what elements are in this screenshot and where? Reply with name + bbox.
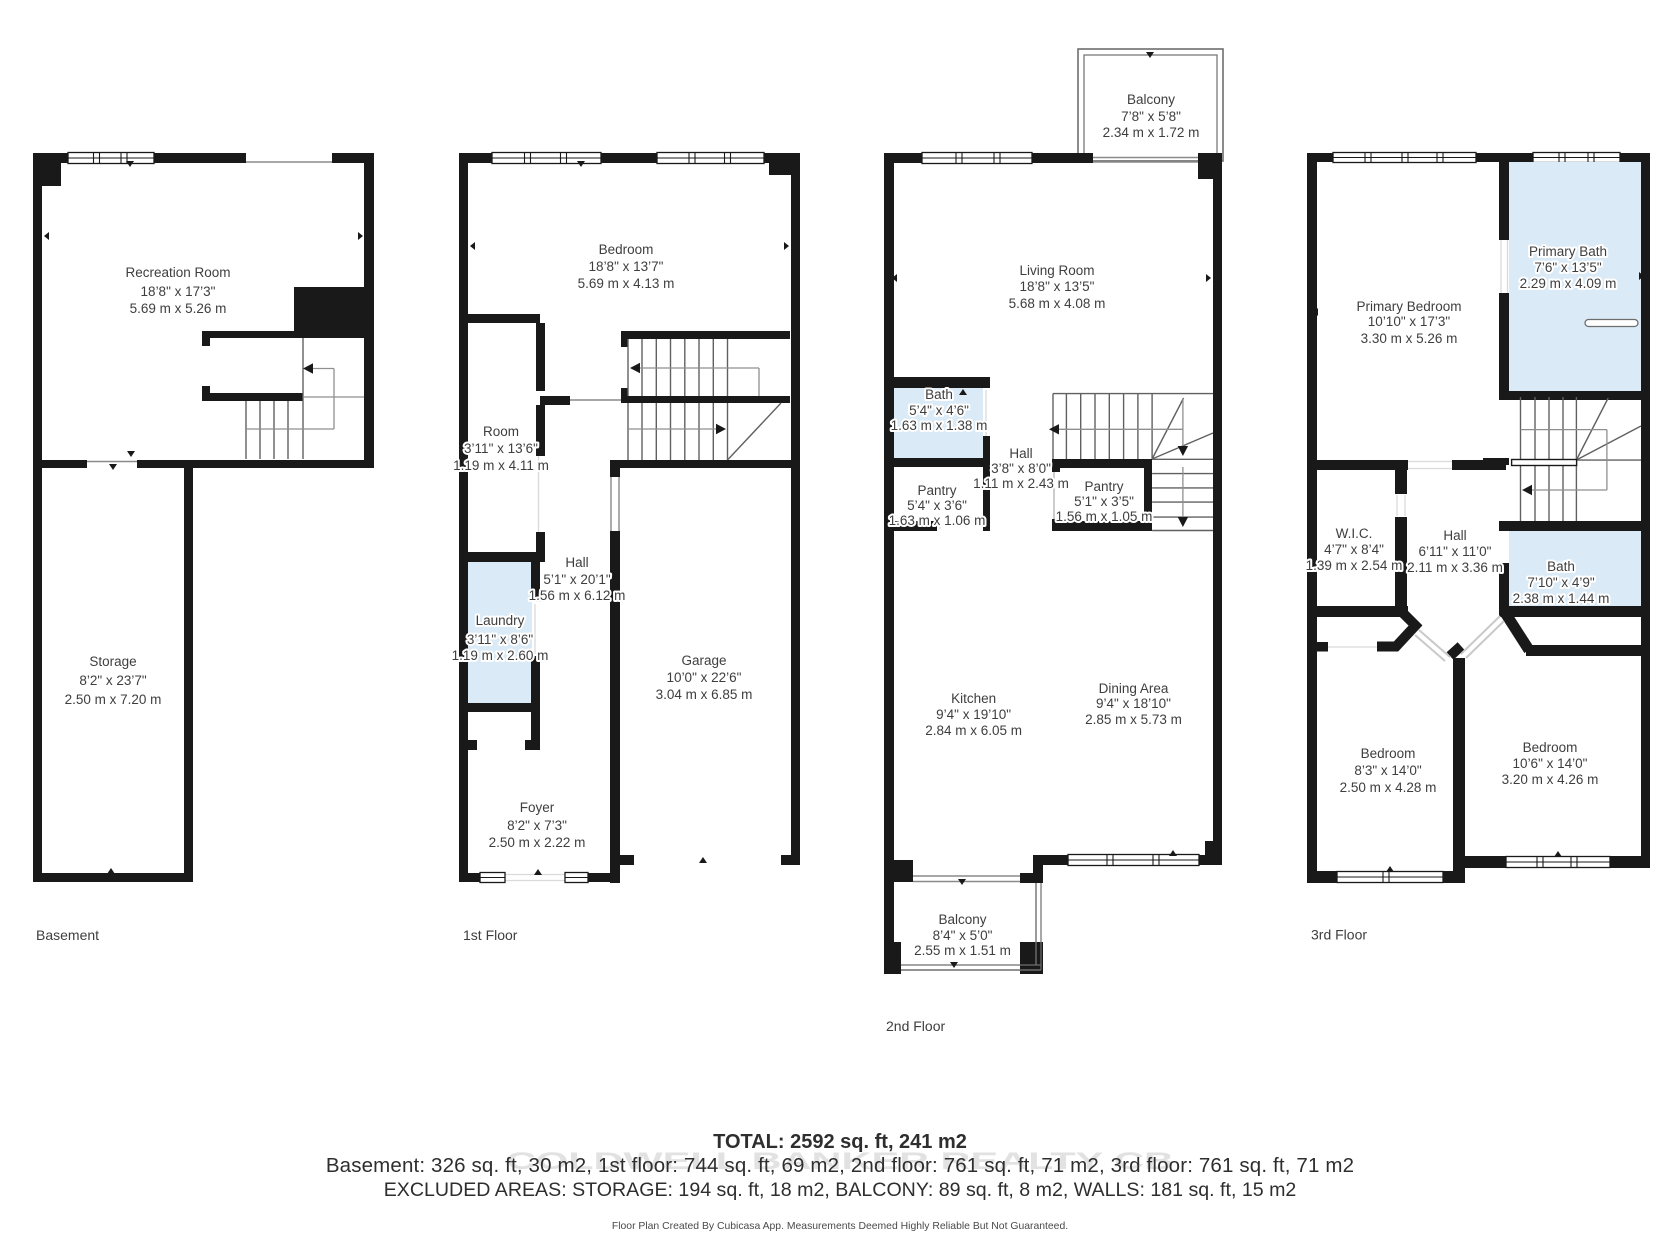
svg-text:3.04 m x 6.85 m: 3.04 m x 6.85 m bbox=[656, 687, 753, 702]
svg-text:Basement: Basement bbox=[36, 927, 99, 943]
svg-text:Recreation Room: Recreation Room bbox=[125, 265, 230, 280]
svg-text:Bath: Bath bbox=[925, 387, 953, 402]
svg-text:10’10" x 17’3": 10’10" x 17’3" bbox=[1368, 314, 1451, 329]
svg-text:8’4" x 5’0": 8’4" x 5’0" bbox=[933, 928, 993, 943]
svg-text:EXCLUDED AREAS: STORAGE: 194 s: EXCLUDED AREAS: STORAGE: 194 sq. ft, 18 … bbox=[384, 1179, 1297, 1201]
svg-text:2nd Floor: 2nd Floor bbox=[886, 1018, 945, 1034]
svg-text:Bedroom: Bedroom bbox=[599, 242, 654, 257]
svg-text:Hall: Hall bbox=[565, 555, 588, 570]
svg-text:2.55 m x 1.51 m: 2.55 m x 1.51 m bbox=[914, 943, 1011, 958]
svg-text:3rd Floor: 3rd Floor bbox=[1311, 927, 1367, 943]
svg-text:Pantry: Pantry bbox=[1084, 479, 1123, 494]
svg-text:2.38 m x 1.44 m: 2.38 m x 1.44 m bbox=[1513, 591, 1610, 606]
svg-text:1.63 m x 1.06 m: 1.63 m x 1.06 m bbox=[889, 513, 986, 528]
svg-text:1.63 m x 1.38 m: 1.63 m x 1.38 m bbox=[891, 418, 988, 433]
svg-text:Bedroom: Bedroom bbox=[1361, 746, 1416, 761]
svg-text:Room: Room bbox=[483, 424, 519, 439]
svg-text:Basement: 326 sq. ft, 30 m2, 1: Basement: 326 sq. ft, 30 m2, 1st floor: … bbox=[326, 1154, 1354, 1177]
svg-text:7’6" x 13’5": 7’6" x 13’5" bbox=[1534, 260, 1602, 275]
svg-text:Primary Bath: Primary Bath bbox=[1529, 244, 1607, 259]
svg-text:4’7" x 8’4": 4’7" x 8’4" bbox=[1324, 542, 1384, 557]
svg-text:6’11" x 11’0": 6’11" x 11’0" bbox=[1419, 544, 1492, 559]
svg-text:3’11" x 13’6": 3’11" x 13’6" bbox=[464, 441, 538, 456]
svg-text:2.85 m x 5.73 m: 2.85 m x 5.73 m bbox=[1085, 712, 1182, 727]
svg-text:Storage: Storage bbox=[89, 654, 136, 669]
svg-text:2.34 m x 1.72 m: 2.34 m x 1.72 m bbox=[1103, 125, 1200, 140]
svg-text:Pantry: Pantry bbox=[917, 483, 956, 498]
svg-text:1.39 m x 2.54 m: 1.39 m x 2.54 m bbox=[1306, 558, 1403, 573]
svg-text:9’4" x 19’10": 9’4" x 19’10" bbox=[936, 707, 1011, 722]
svg-text:Floor Plan Created By Cubicasa: Floor Plan Created By Cubicasa App. Meas… bbox=[612, 1221, 1068, 1232]
svg-text:Primary Bedroom: Primary Bedroom bbox=[1356, 299, 1461, 314]
svg-text:2.11 m x 3.36 m: 2.11 m x 3.36 m bbox=[1407, 560, 1503, 575]
svg-text:Balcony: Balcony bbox=[938, 912, 986, 927]
svg-text:5.69 m x 4.13 m: 5.69 m x 4.13 m bbox=[578, 276, 675, 291]
svg-text:8’2" x 7’3": 8’2" x 7’3" bbox=[507, 818, 567, 833]
svg-text:2.50 m x 7.20 m: 2.50 m x 7.20 m bbox=[65, 692, 162, 707]
svg-text:2.29 m x 4.09 m: 2.29 m x 4.09 m bbox=[1520, 276, 1617, 291]
svg-text:Balcony: Balcony bbox=[1127, 92, 1175, 107]
svg-text:Kitchen: Kitchen bbox=[951, 691, 996, 706]
svg-text:2.84 m x 6.05 m: 2.84 m x 6.05 m bbox=[925, 723, 1022, 738]
svg-text:3.30 m x 5.26 m: 3.30 m x 5.26 m bbox=[1361, 331, 1458, 346]
svg-text:1.56 m x 1.05 m: 1.56 m x 1.05 m bbox=[1056, 509, 1153, 524]
svg-text:5.69 m x 5.26 m: 5.69 m x 5.26 m bbox=[130, 301, 227, 316]
svg-text:Foyer: Foyer bbox=[520, 800, 555, 815]
svg-text:5’1" x 20’1": 5’1" x 20’1" bbox=[543, 572, 611, 587]
svg-text:Dining Area: Dining Area bbox=[1099, 681, 1169, 696]
svg-text:TOTAL: 2592 sq. ft, 241 m2: TOTAL: 2592 sq. ft, 241 m2 bbox=[713, 1131, 967, 1153]
svg-text:10’6" x 14’0": 10’6" x 14’0" bbox=[1513, 756, 1588, 771]
svg-text:W.I.C.: W.I.C. bbox=[1336, 526, 1373, 541]
svg-text:3’8" x 8’0": 3’8" x 8’0" bbox=[991, 461, 1051, 476]
svg-text:1st Floor: 1st Floor bbox=[463, 927, 518, 943]
svg-text:Bedroom: Bedroom bbox=[1523, 740, 1578, 755]
svg-text:2.50 m x 4.28 m: 2.50 m x 4.28 m bbox=[1340, 780, 1437, 795]
svg-text:Living Room: Living Room bbox=[1019, 263, 1094, 278]
svg-text:Bath: Bath bbox=[1547, 559, 1575, 574]
svg-text:7’8" x 5’8": 7’8" x 5’8" bbox=[1121, 109, 1181, 124]
svg-text:1.19 m x 4.11 m: 1.19 m x 4.11 m bbox=[453, 458, 549, 473]
svg-text:5’4" x 3’6": 5’4" x 3’6" bbox=[907, 498, 967, 513]
svg-text:8’3" x 14’0": 8’3" x 14’0" bbox=[1354, 763, 1422, 778]
svg-text:5.68 m x 4.08 m: 5.68 m x 4.08 m bbox=[1009, 296, 1106, 311]
svg-text:Garage: Garage bbox=[681, 653, 726, 668]
svg-text:5’1" x 3’5": 5’1" x 3’5" bbox=[1074, 494, 1134, 509]
svg-text:7’10" x 4’9": 7’10" x 4’9" bbox=[1527, 575, 1595, 590]
svg-text:8’2" x 23’7": 8’2" x 23’7" bbox=[79, 673, 147, 688]
svg-text:9’4" x 18’10": 9’4" x 18’10" bbox=[1096, 696, 1171, 711]
svg-text:18’8" x 13’7": 18’8" x 13’7" bbox=[589, 259, 664, 274]
svg-text:Hall: Hall bbox=[1009, 446, 1032, 461]
svg-text:18’8" x 17’3": 18’8" x 17’3" bbox=[141, 284, 216, 299]
svg-text:1.56 m x 6.12 m: 1.56 m x 6.12 m bbox=[529, 588, 626, 603]
svg-text:1.19 m x 2.60 m: 1.19 m x 2.60 m bbox=[452, 648, 549, 663]
svg-text:1.11 m x 2.43 m: 1.11 m x 2.43 m bbox=[973, 476, 1069, 491]
svg-text:Hall: Hall bbox=[1443, 528, 1466, 543]
svg-text:3.20 m x 4.26 m: 3.20 m x 4.26 m bbox=[1502, 772, 1599, 787]
svg-text:2.50 m x 2.22 m: 2.50 m x 2.22 m bbox=[489, 835, 586, 850]
svg-text:5’4" x 4’6": 5’4" x 4’6" bbox=[909, 403, 969, 418]
svg-text:18’8" x 13’5": 18’8" x 13’5" bbox=[1020, 279, 1095, 294]
svg-text:3’11" x 8’6": 3’11" x 8’6" bbox=[467, 632, 534, 647]
svg-text:10’0" x 22’6": 10’0" x 22’6" bbox=[667, 670, 742, 685]
svg-text:Laundry: Laundry bbox=[476, 613, 525, 628]
